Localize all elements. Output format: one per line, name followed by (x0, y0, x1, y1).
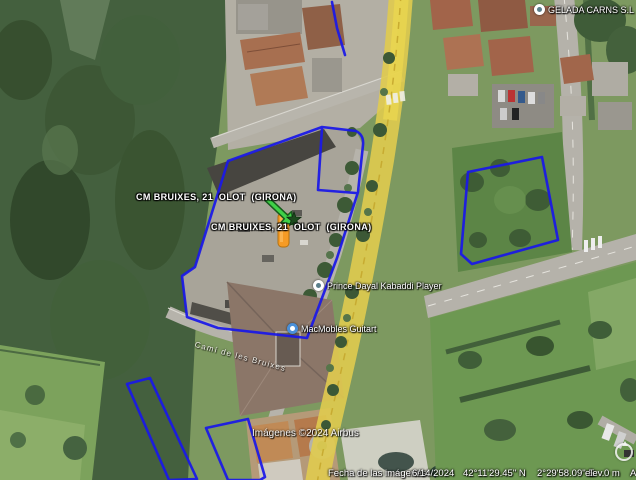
placemark-label-secondary[interactable]: CM BRUIXES, 21 OLOT (GIRONA) (211, 222, 372, 232)
compass-icon[interactable] (615, 443, 633, 461)
status-truncated-text: A (630, 468, 636, 479)
status-imagery-date: 6/14/2024 (412, 468, 454, 479)
status-elevation: 0 m (604, 468, 620, 479)
placemark-label-primary[interactable]: CM BRUIXES, 21 OLOT (GIRONA) (136, 192, 297, 202)
poi-label: GELADA CARNS S.L (548, 5, 634, 15)
poi-label: MacMobles Guitart (301, 324, 377, 334)
poi-marker-icon[interactable] (287, 323, 298, 334)
satellite-imagery[interactable] (0, 0, 636, 480)
status-latitude: 42°11'29.45" N (463, 468, 526, 479)
google-earth-map-view[interactable]: CM BRUIXES, 21 OLOT (GIRONA) CM BRUIXES,… (0, 0, 636, 480)
imagery-attribution: Imágenes ©2024 Airbus (252, 428, 359, 439)
poi-macmobles[interactable]: MacMobles Guitart (287, 323, 377, 334)
poi-marker-icon[interactable] (534, 4, 545, 15)
poi-marker-icon[interactable] (313, 280, 324, 291)
poi-gelada-carns[interactable]: GELADA CARNS S.L (534, 4, 634, 15)
poi-kabaddi-player[interactable]: Prince Dayal Kabaddi Player (313, 280, 442, 291)
poi-label: Prince Dayal Kabaddi Player (327, 281, 442, 291)
status-elevation-label: elev. (585, 468, 604, 479)
